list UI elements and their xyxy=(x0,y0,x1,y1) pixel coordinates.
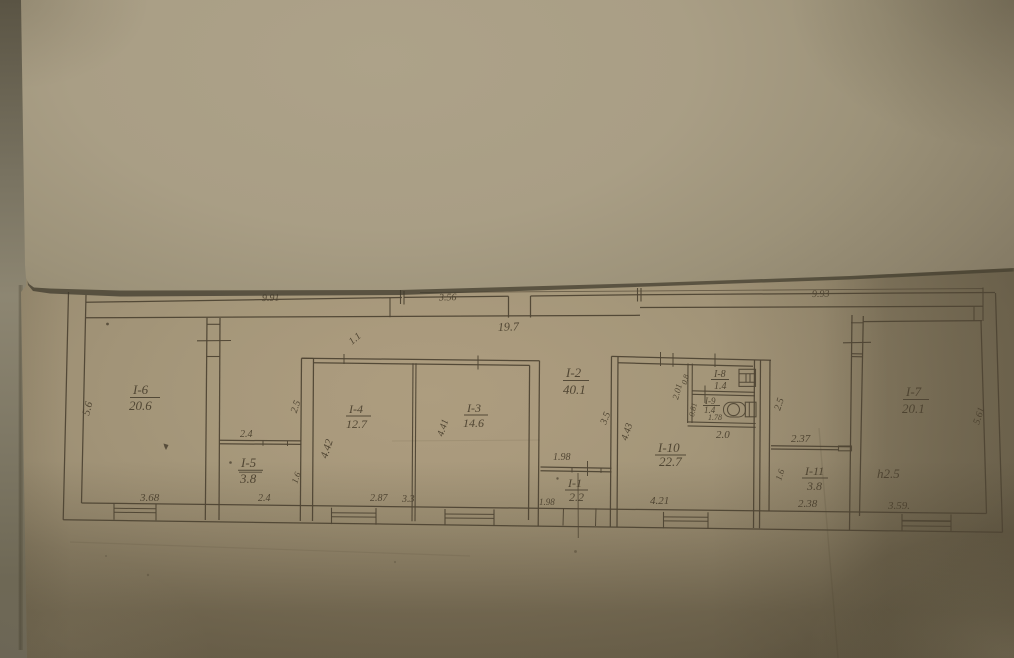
svg-text:1.1: 1.1 xyxy=(347,331,364,347)
svg-text:1.6: 1.6 xyxy=(773,467,786,481)
svg-text:I-5: I-5 xyxy=(240,455,257,470)
svg-text:4.41: 4.41 xyxy=(435,418,451,438)
svg-text:5.61: 5.61 xyxy=(971,406,987,426)
svg-text:I-2: I-2 xyxy=(565,365,582,380)
svg-text:2.87: 2.87 xyxy=(370,493,389,504)
svg-text:2.5: 2.5 xyxy=(772,397,786,412)
svg-text:4.42: 4.42 xyxy=(318,437,336,459)
svg-text:h2.5: h2.5 xyxy=(877,466,900,481)
svg-text:I-7: I-7 xyxy=(905,384,922,399)
svg-text:22.7: 22.7 xyxy=(659,454,682,469)
svg-text:4.21: 4.21 xyxy=(650,495,669,507)
svg-text:12.7: 12.7 xyxy=(346,417,368,431)
svg-text:19.7: 19.7 xyxy=(498,319,520,334)
svg-text:I-10: I-10 xyxy=(657,440,680,455)
svg-text:1.4: 1.4 xyxy=(714,381,727,392)
svg-text:2.37: 2.37 xyxy=(791,433,811,445)
svg-text:0.81: 0.81 xyxy=(687,402,699,418)
svg-text:3.59.: 3.59. xyxy=(887,500,910,512)
svg-text:14.6: 14.6 xyxy=(463,416,484,430)
svg-text:5.6: 5.6 xyxy=(80,400,95,417)
svg-text:4.43: 4.43 xyxy=(619,422,635,442)
svg-text:I-1: I-1 xyxy=(567,476,582,490)
svg-text:2.2: 2.2 xyxy=(569,490,584,504)
svg-text:3.8: 3.8 xyxy=(239,471,257,486)
svg-text:0.8: 0.8 xyxy=(680,374,691,386)
svg-text:3.56: 3.56 xyxy=(438,292,457,303)
svg-text:3.8: 3.8 xyxy=(806,479,822,493)
svg-text:20.1: 20.1 xyxy=(902,401,925,416)
svg-text:2.01: 2.01 xyxy=(670,383,684,401)
svg-text:I-4: I-4 xyxy=(348,402,363,416)
svg-text:1.98: 1.98 xyxy=(539,497,555,507)
svg-text:I-11: I-11 xyxy=(804,464,824,478)
svg-text:3.3: 3.3 xyxy=(401,494,415,505)
svg-text:1.78: 1.78 xyxy=(708,413,722,422)
svg-text:9.93: 9.93 xyxy=(812,289,830,300)
svg-text:3.68: 3.68 xyxy=(139,492,160,504)
svg-text:1.98: 1.98 xyxy=(553,452,571,463)
svg-text:20.6: 20.6 xyxy=(129,398,152,413)
svg-text:I-3: I-3 xyxy=(466,401,481,415)
svg-text:2.0: 2.0 xyxy=(716,429,730,441)
svg-text:40.1: 40.1 xyxy=(563,382,586,397)
svg-text:I-6: I-6 xyxy=(132,382,149,397)
svg-text:2.4: 2.4 xyxy=(240,429,253,440)
svg-text:2.4: 2.4 xyxy=(258,493,271,504)
svg-text:2.38: 2.38 xyxy=(798,498,818,510)
svg-text:I-8: I-8 xyxy=(713,369,726,380)
